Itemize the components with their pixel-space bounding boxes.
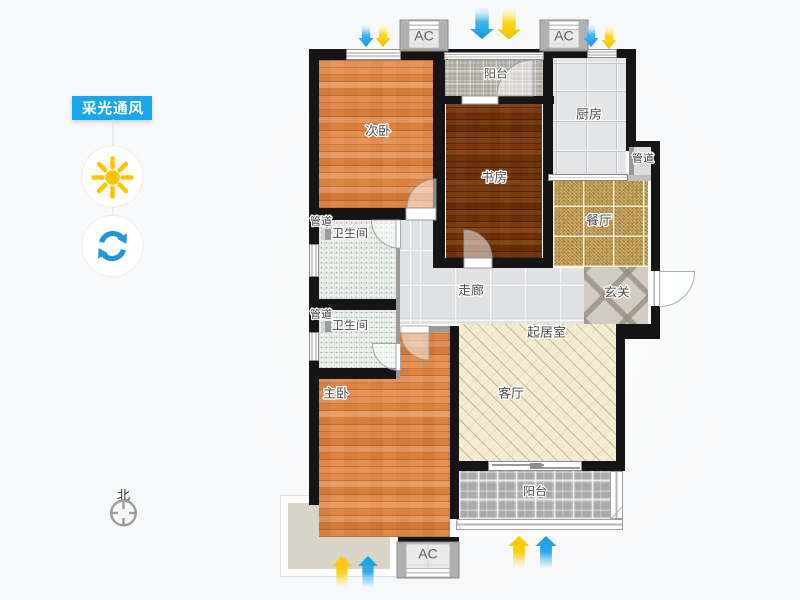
svg-text:AC: AC	[554, 28, 573, 44]
svg-text:AC: AC	[414, 28, 433, 44]
svg-text:AC: AC	[418, 546, 437, 562]
